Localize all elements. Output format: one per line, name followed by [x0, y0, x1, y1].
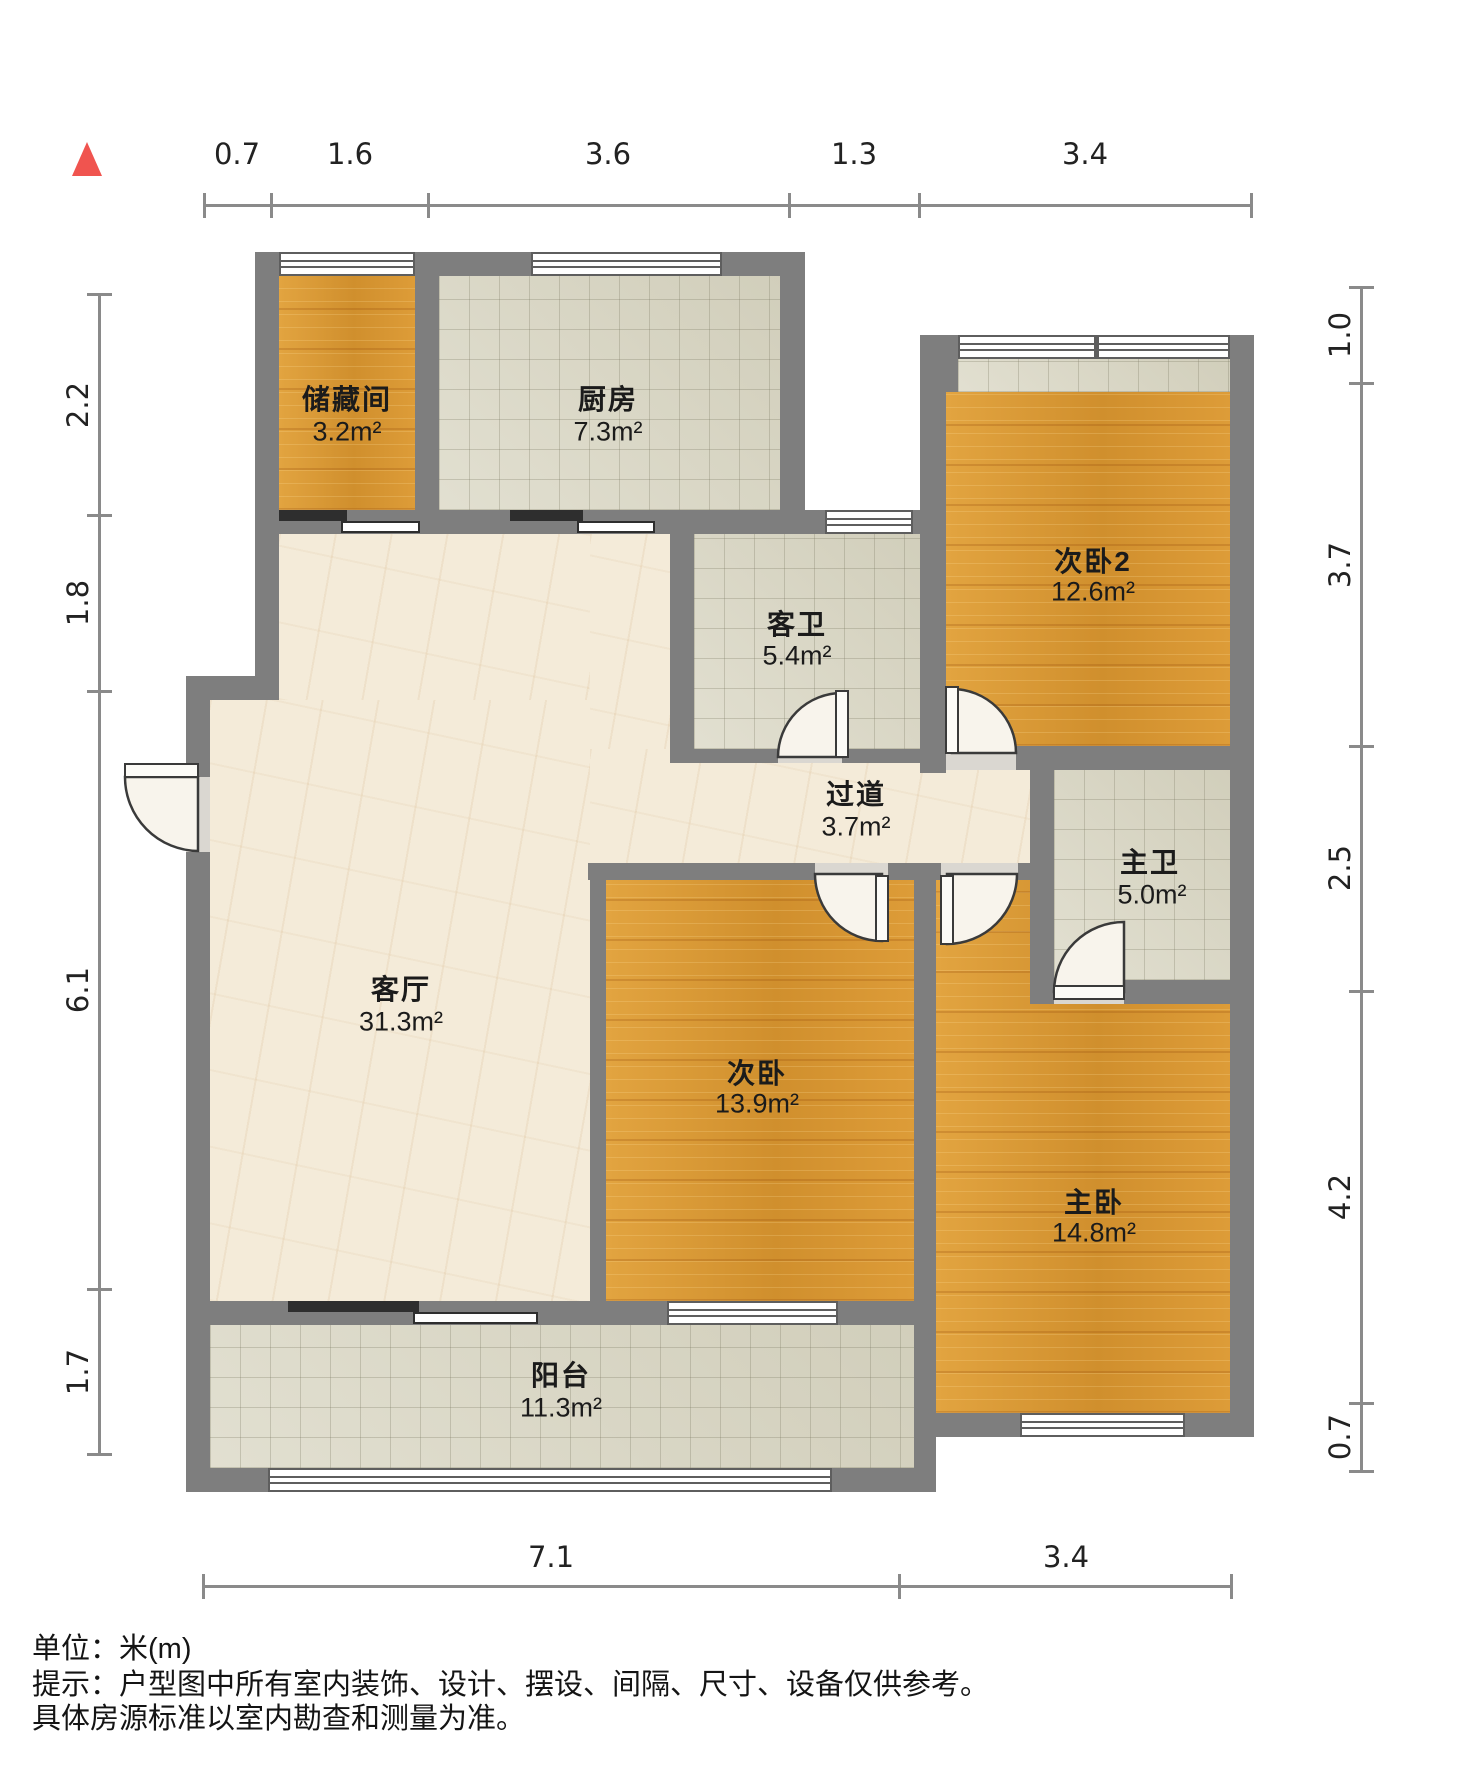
entry-door-arc: [125, 777, 198, 851]
room-label-bedroom2: 次卧2: [1054, 540, 1132, 580]
dim-left-3: 1.7: [61, 1349, 95, 1395]
dim-right-3: 4.2: [1323, 1174, 1357, 1220]
dim-tick: [202, 1574, 205, 1599]
room-area-bedroom: 13.9m²: [715, 1089, 799, 1120]
room-area-storage: 3.2m²: [312, 417, 381, 448]
dim-tick: [788, 193, 791, 218]
dim-top-1: 1.6: [327, 137, 373, 171]
room-area-balcony: 11.3m²: [520, 1393, 602, 1424]
room-label-guest-bath: 客卫: [767, 603, 827, 643]
room-label-master-bath: 主卫: [1120, 841, 1180, 881]
dim-tick: [87, 1453, 112, 1456]
footer-tip-line2: 具体房源标准以室内勘查和测量为准。: [32, 1695, 525, 1737]
dim-line-bottom: [203, 1585, 1232, 1588]
dim-tick: [1349, 382, 1374, 385]
bedroom-door-arc: [815, 874, 882, 941]
dim-top-4: 3.4: [1062, 137, 1108, 171]
room-area-guest-bath: 5.4m²: [762, 641, 831, 672]
dim-tick: [1230, 1574, 1233, 1599]
dim-left-0: 2.2: [61, 382, 95, 428]
dim-tick: [427, 193, 430, 218]
dim-tick: [1349, 1402, 1374, 1405]
dim-top-2: 3.6: [585, 137, 631, 171]
entry-door-leaf: [125, 764, 198, 777]
floorplan-canvas: 储藏间 3.2m² 厨房 7.3m² 客卫 5.4m² 次卧2 12.6m² 过…: [0, 0, 1467, 1774]
dim-right-1: 3.7: [1323, 542, 1357, 588]
room-label-corridor: 过道: [826, 773, 886, 813]
room-label-balcony: 阳台: [531, 1354, 591, 1394]
room-label-kitchen: 厨房: [578, 378, 638, 418]
dim-bottom-1: 3.4: [1043, 1540, 1089, 1574]
dim-right-4: 0.7: [1323, 1414, 1357, 1460]
dim-tick: [203, 193, 206, 218]
dim-left-2: 6.1: [61, 967, 95, 1013]
dim-tick: [1349, 1470, 1374, 1473]
dim-line-right: [1360, 287, 1363, 1472]
bedroom-door-leaf: [876, 876, 888, 941]
dim-tick: [87, 514, 112, 517]
master-bedroom-door-leaf: [941, 876, 953, 944]
room-label-living: 客厅: [371, 968, 431, 1008]
dim-right-0: 1.0: [1323, 312, 1357, 358]
dim-tick: [87, 293, 112, 296]
dim-line-left: [98, 294, 101, 1455]
dim-tick: [1250, 193, 1253, 218]
dim-top-0: 0.7: [214, 137, 260, 171]
guest-bath-door-leaf: [836, 691, 848, 757]
dim-top-3: 1.3: [831, 137, 877, 171]
room-area-kitchen: 7.3m²: [573, 417, 642, 448]
dim-tick: [87, 1288, 112, 1291]
room-label-bedroom: 次卧: [727, 1052, 787, 1092]
dim-tick: [1349, 990, 1374, 993]
master-bath-door-arc: [1054, 922, 1124, 992]
room-label-master-bedroom: 主卧: [1064, 1181, 1124, 1221]
dim-tick: [270, 193, 273, 218]
room-area-master-bedroom: 14.8m²: [1052, 1218, 1136, 1249]
room-label-storage: 储藏间: [302, 378, 392, 418]
dim-tick: [87, 690, 112, 693]
room-area-living: 31.3m²: [359, 1007, 443, 1038]
bedroom2-door-leaf: [946, 687, 958, 753]
room-area-master-bath: 5.0m²: [1117, 880, 1186, 911]
dim-bottom-0: 7.1: [528, 1540, 574, 1574]
dim-line-top: [204, 204, 1252, 207]
master-bath-door-leaf: [1054, 986, 1124, 999]
door-swing-layer: [0, 0, 1467, 1774]
dim-tick: [898, 1574, 901, 1599]
dim-tick: [918, 193, 921, 218]
dim-tick: [1349, 286, 1374, 289]
dim-tick: [1349, 745, 1374, 748]
dim-right-2: 2.5: [1323, 845, 1357, 891]
bedroom2-door-arc: [952, 689, 1016, 753]
room-area-corridor: 3.7m²: [821, 812, 890, 843]
master-bedroom-door-arc: [947, 874, 1017, 944]
room-area-bedroom2: 12.6m²: [1051, 577, 1135, 608]
guest-bath-door-arc: [778, 693, 842, 757]
dim-left-1: 1.8: [61, 580, 95, 626]
